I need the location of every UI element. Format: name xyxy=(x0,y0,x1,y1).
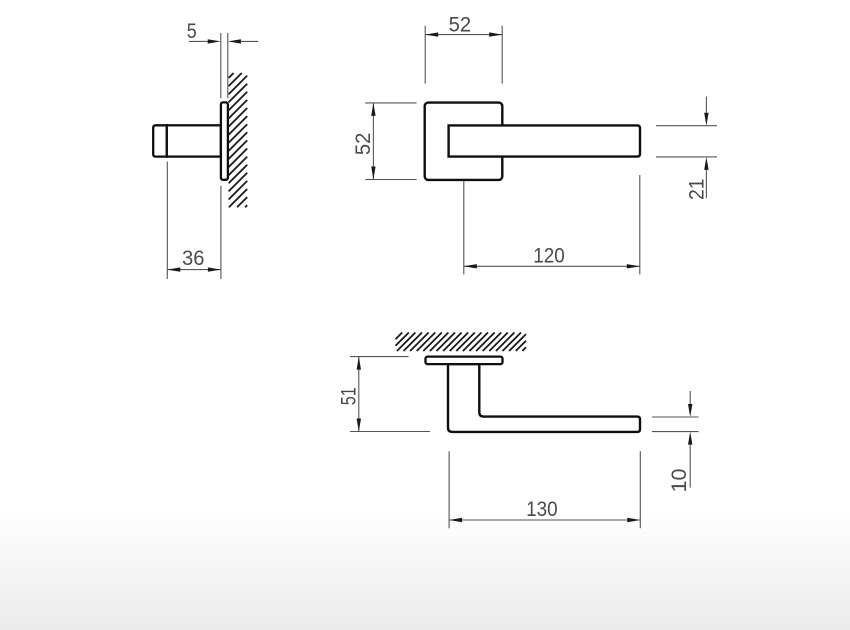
svg-text:52: 52 xyxy=(352,133,375,156)
svg-text:52: 52 xyxy=(449,13,472,36)
svg-text:10: 10 xyxy=(668,469,691,493)
svg-text:36: 36 xyxy=(182,247,204,270)
svg-text:5: 5 xyxy=(187,20,197,43)
svg-text:130: 130 xyxy=(526,498,558,521)
svg-text:120: 120 xyxy=(533,245,565,268)
svg-text:21: 21 xyxy=(685,178,708,200)
svg-text:51: 51 xyxy=(337,387,360,405)
